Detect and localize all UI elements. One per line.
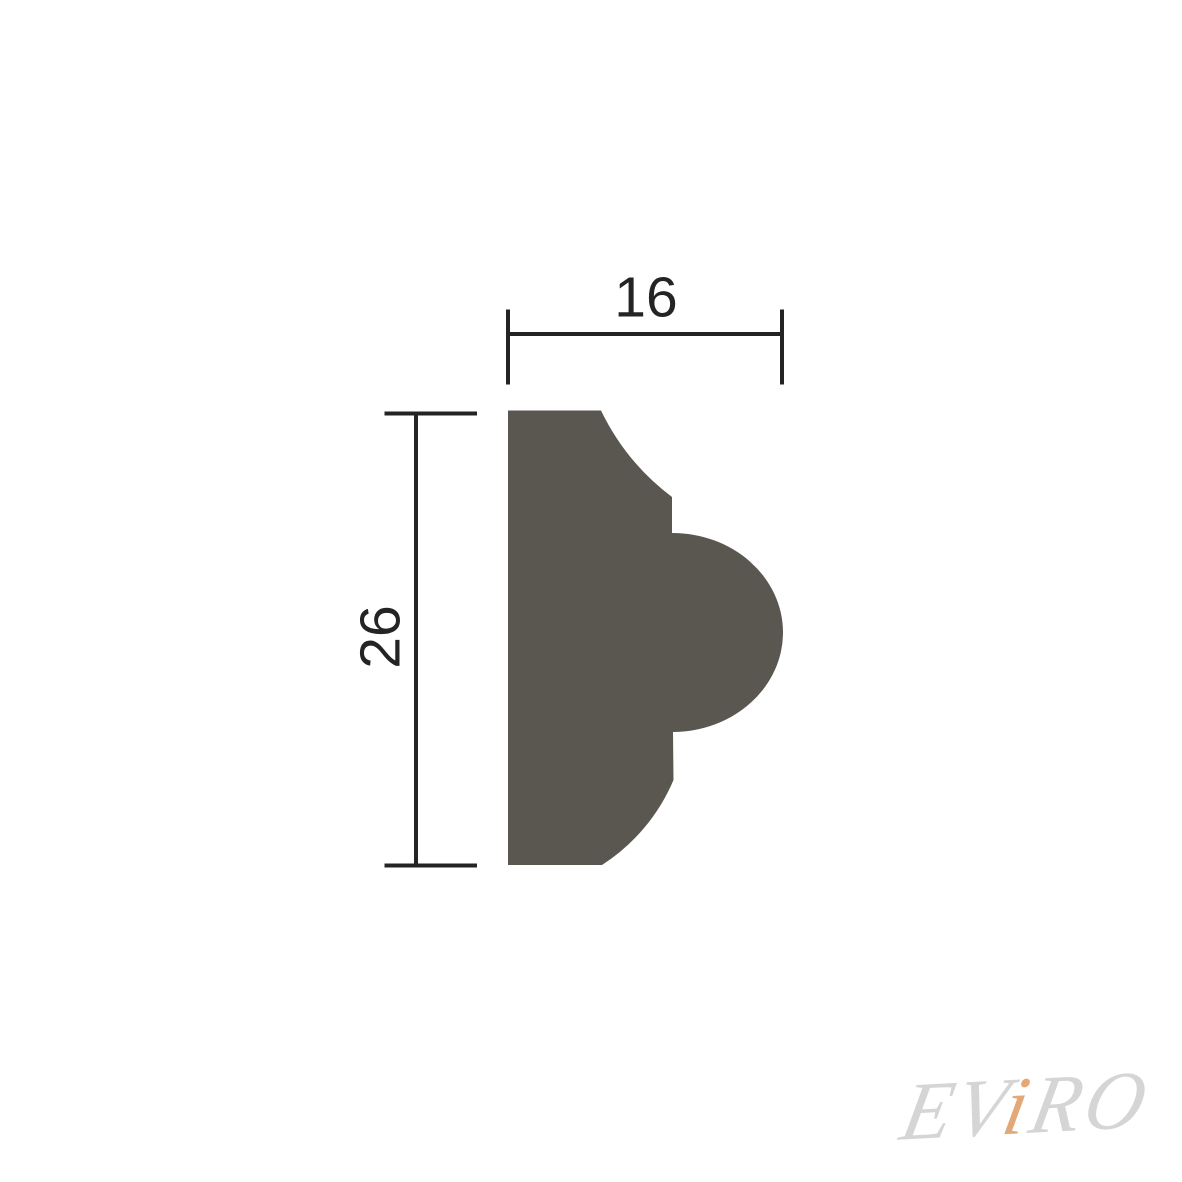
width-dimension-label: 16 [614,270,677,327]
watermark-part-ro: RO [1023,1053,1158,1151]
molding-profile-shape [508,411,783,866]
height-dimension-label: 26 [353,605,410,668]
watermark-part-ev: EV [894,1061,1014,1158]
technical-drawing [0,0,1182,1182]
watermark-logo: EViRO [895,1058,1157,1154]
drawing-canvas: 16 26 EViRO [0,0,1182,1182]
